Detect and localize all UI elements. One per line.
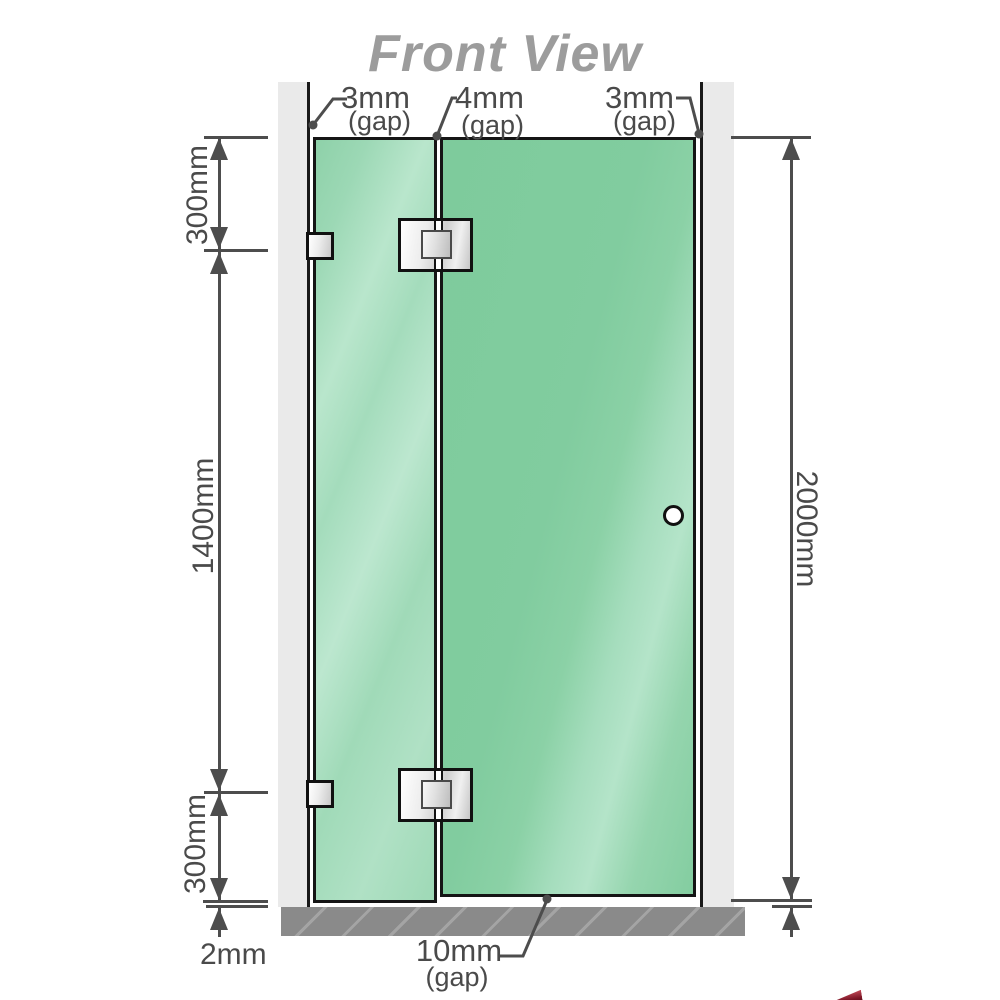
gap-label-bottom-sub: (gap) bbox=[407, 962, 507, 993]
arrowhead bbox=[210, 252, 228, 274]
door-knob bbox=[663, 505, 684, 526]
right-wall bbox=[700, 82, 734, 907]
arrowhead bbox=[782, 877, 800, 899]
dim-label-2000: 2000mm bbox=[789, 459, 823, 599]
brand-mark bbox=[832, 990, 862, 1000]
gap-label-left-sub: (gap) bbox=[348, 106, 411, 137]
floor bbox=[281, 907, 745, 936]
arrowhead bbox=[782, 138, 800, 160]
glass-hinge-top bbox=[398, 218, 473, 272]
hinge-center-plate bbox=[421, 230, 452, 259]
hinge-gap-line bbox=[434, 258, 443, 269]
gap-label-right-sub: (gap) bbox=[613, 106, 676, 137]
dim-label-2mm: 2mm bbox=[200, 938, 267, 972]
arrowhead bbox=[782, 908, 800, 930]
front-view-diagram: Front View 300mm 1400mm bbox=[0, 0, 1000, 1000]
glass-hinge-bottom bbox=[398, 768, 473, 822]
wall-bracket-top bbox=[306, 232, 334, 260]
dim-tick bbox=[731, 899, 812, 902]
hinge-gap-line bbox=[434, 808, 443, 819]
wall-bracket-bottom bbox=[306, 780, 334, 808]
diagram-title: Front View bbox=[330, 24, 680, 84]
arrowhead bbox=[210, 908, 228, 930]
gap-label-middle-sub: (gap) bbox=[461, 110, 524, 141]
hinge-center-plate bbox=[421, 780, 452, 809]
dim-label-1400: 1400mm bbox=[187, 446, 221, 586]
door-glass-panel bbox=[440, 137, 696, 897]
dim-label-300-bottom: 300mm bbox=[179, 784, 213, 904]
dim-label-300-top: 300mm bbox=[181, 135, 215, 255]
